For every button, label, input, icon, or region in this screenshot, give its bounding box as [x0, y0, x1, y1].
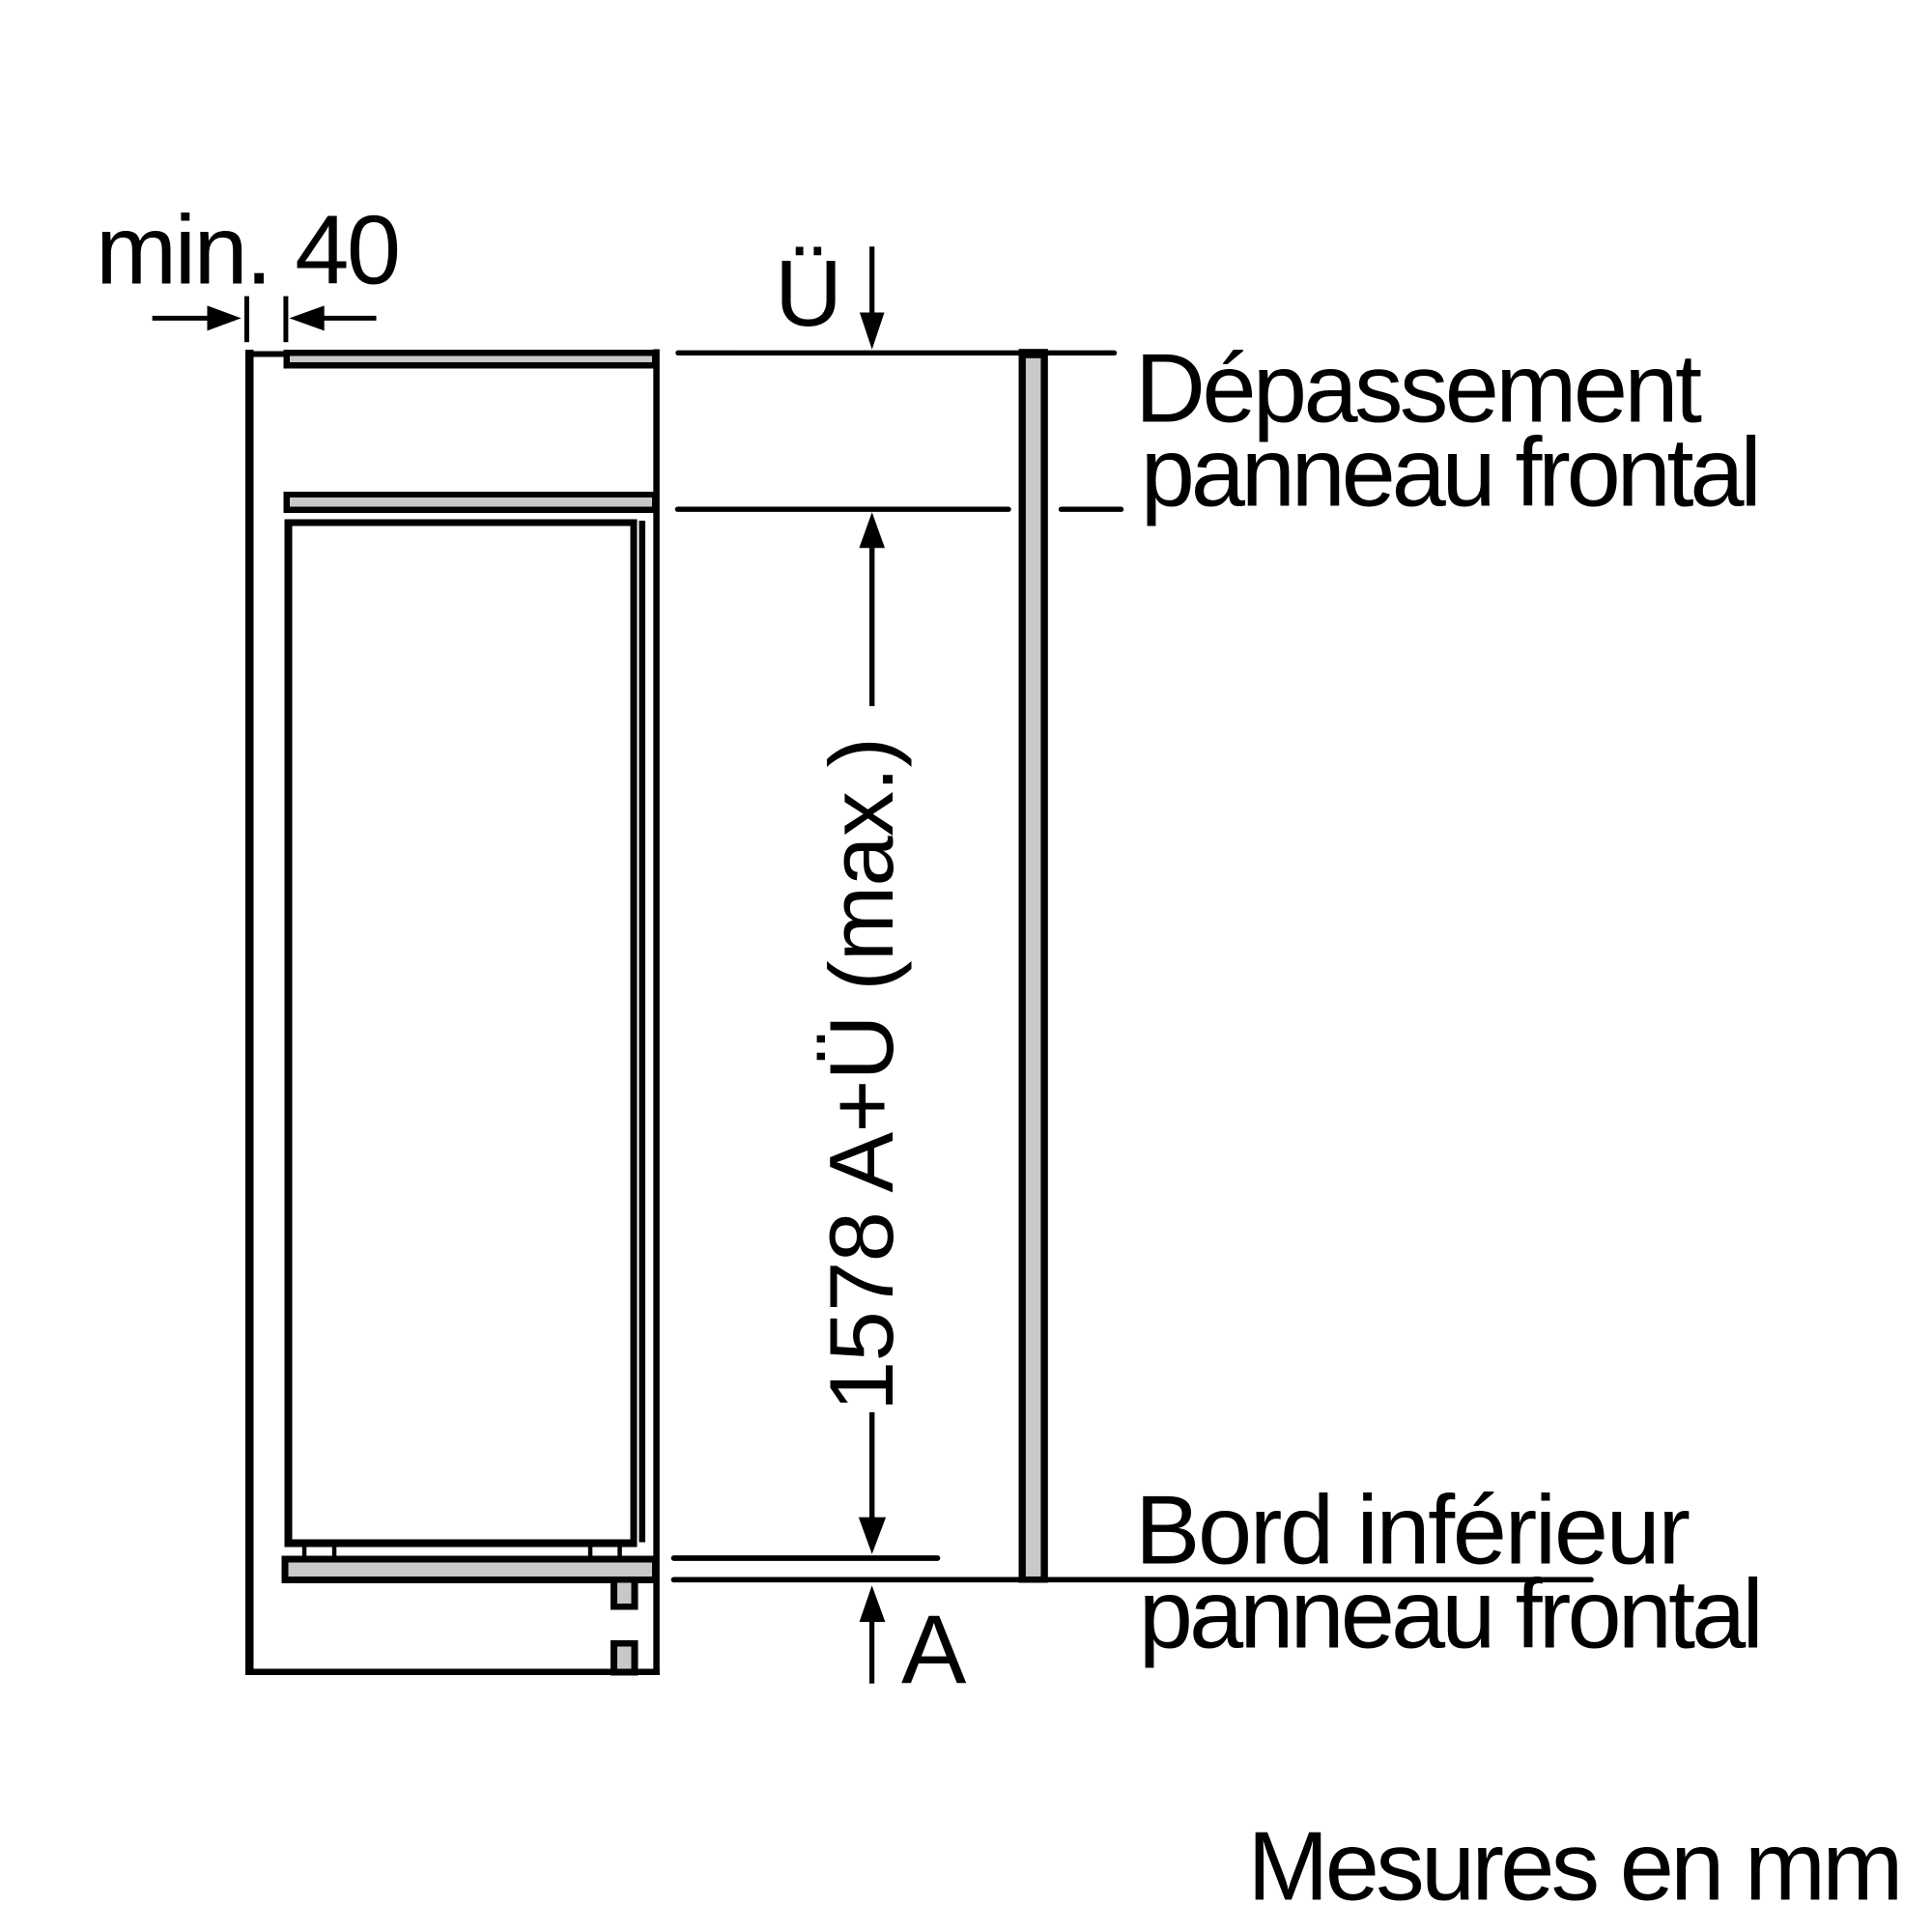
svg-text:A: A	[901, 1597, 967, 1705]
svg-text:Mesures en mm: Mesures en mm	[1247, 1813, 1903, 1921]
svg-text:min. 40: min. 40	[96, 196, 401, 304]
svg-text:Ü: Ü	[775, 241, 842, 346]
svg-text:panneau frontal: panneau frontal	[1141, 418, 1762, 526]
svg-text:1578 A+Ü (max.): 1578 A+Ü (max.)	[810, 737, 912, 1411]
svg-text:panneau frontal: panneau frontal	[1139, 1560, 1764, 1668]
